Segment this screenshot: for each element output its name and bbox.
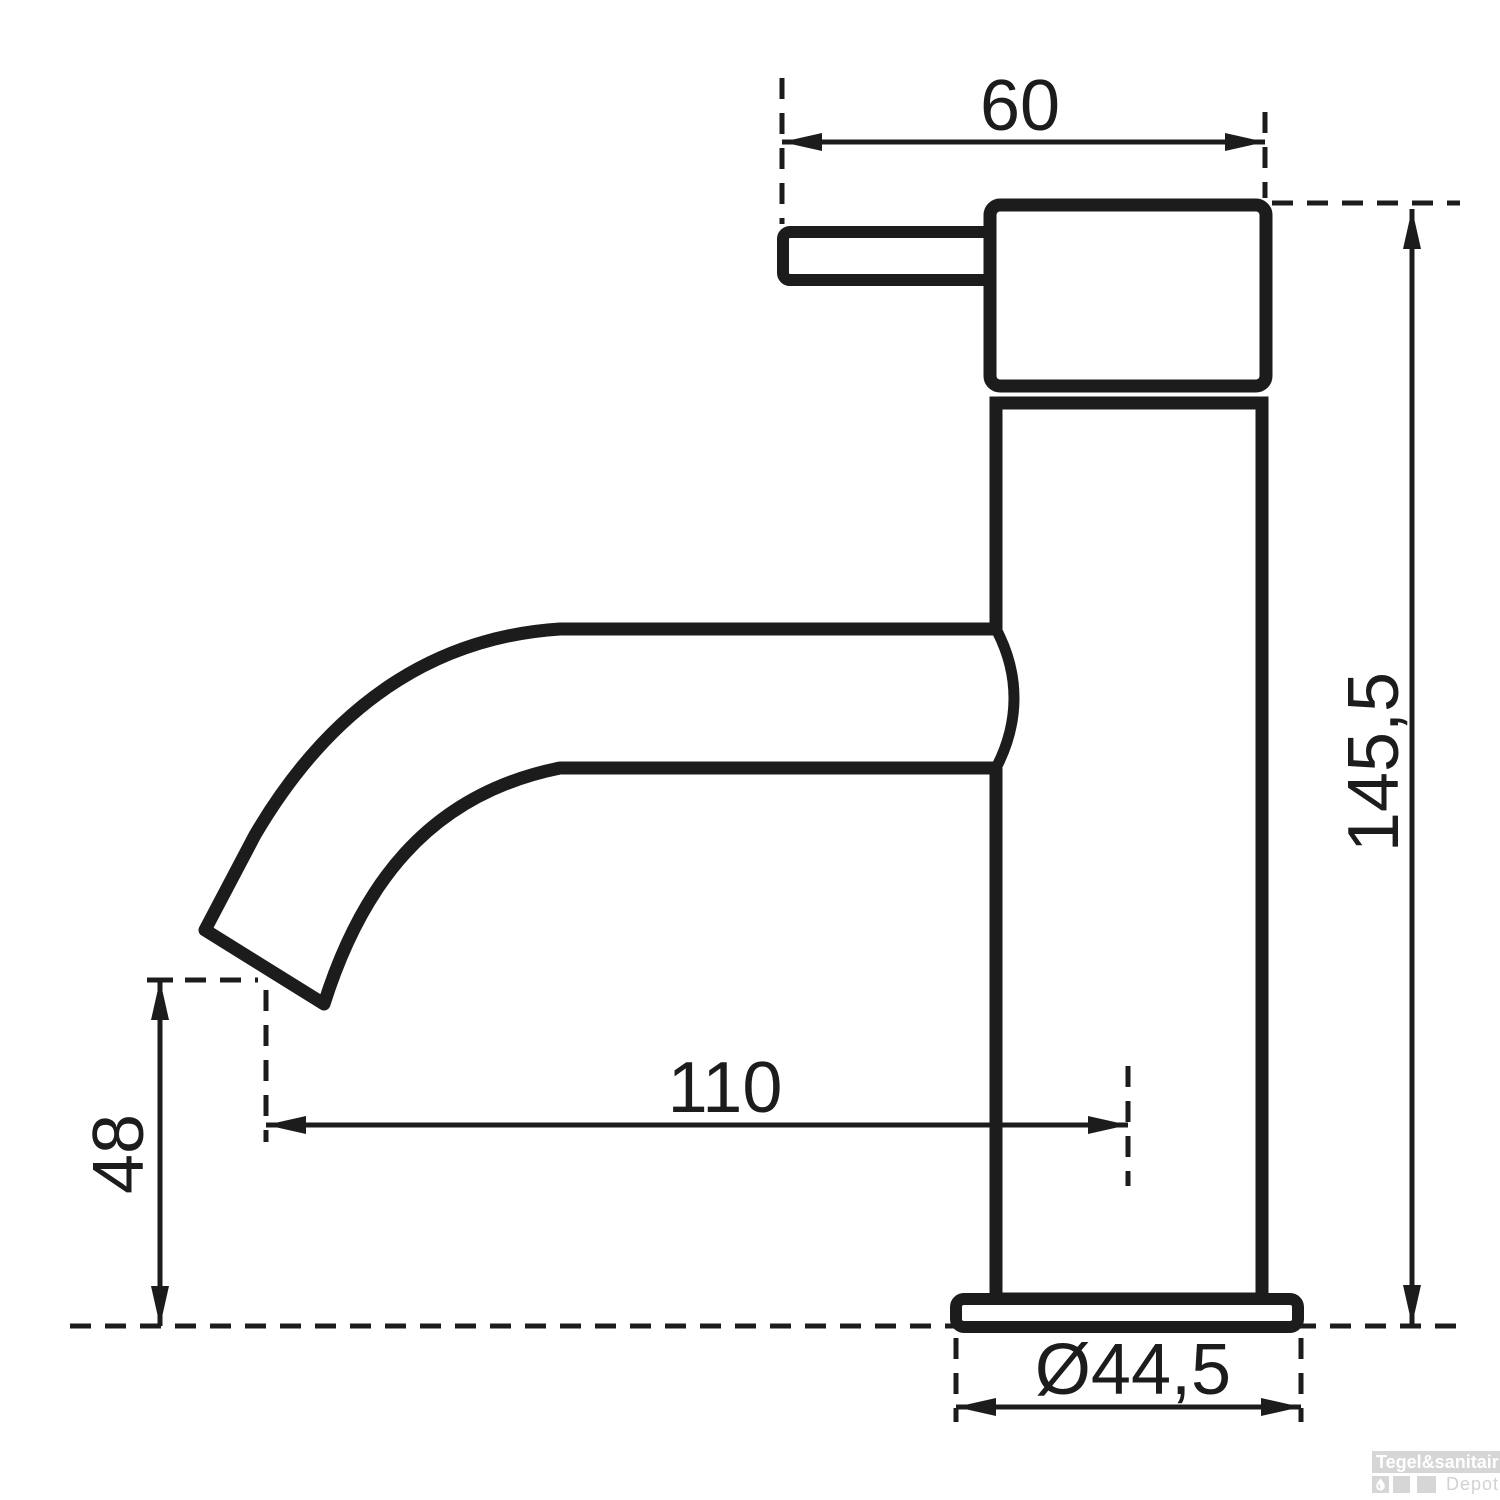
faucet-body-fill: [996, 403, 1262, 1299]
watermark-sub-brand: Depot: [1446, 1476, 1499, 1493]
drawing-canvas: 60 145,5 48 110 Ø44,5 Tegel&sanitair: [0, 0, 1500, 1500]
dimension-total-height: 145,5: [1334, 209, 1421, 1325]
faucet-spout-fill: [205, 629, 1000, 1004]
arrowhead-right: [1261, 1398, 1301, 1416]
dimension-spout-outlet-height: 48: [79, 980, 173, 1326]
arrowhead-top: [1403, 209, 1421, 249]
arrowhead-left: [956, 1398, 996, 1416]
faucet-base-plate: [956, 1299, 1298, 1327]
watermark-logo-row: Depot: [1372, 1476, 1500, 1493]
watermark-square-1: [1372, 1476, 1389, 1493]
faucet-top-cap: [990, 205, 1266, 386]
faucet-handle-lever: [783, 232, 1003, 280]
arrowhead-right: [1225, 133, 1265, 151]
dim-label-diameter-44-5: Ø44,5: [1035, 1330, 1231, 1410]
dimension-handle-length: 60: [782, 66, 1265, 151]
arrowhead-bottom: [1403, 1285, 1421, 1325]
watermark: Tegel&sanitair Depot: [1372, 1451, 1500, 1493]
dim-label-110: 110: [668, 1048, 783, 1128]
arrowhead-top: [151, 980, 169, 1020]
dim-label-60: 60: [980, 66, 1060, 146]
watermark-brand: Tegel&sanitair: [1372, 1451, 1500, 1473]
dim-label-145-5: 145,5: [1334, 672, 1414, 852]
arrowhead-left: [782, 133, 822, 151]
water-droplet-icon: [1375, 1478, 1386, 1491]
arrowhead-bottom: [151, 1286, 169, 1326]
faucet-technical-drawing: 60 145,5 48 110 Ø44,5: [0, 0, 1500, 1500]
watermark-square-3: [1417, 1476, 1436, 1493]
watermark-square-2: [1393, 1476, 1410, 1493]
dimension-base-diameter: Ø44,5: [956, 1330, 1301, 1416]
arrowhead-left: [266, 1116, 306, 1134]
dim-label-48: 48: [79, 1114, 159, 1194]
